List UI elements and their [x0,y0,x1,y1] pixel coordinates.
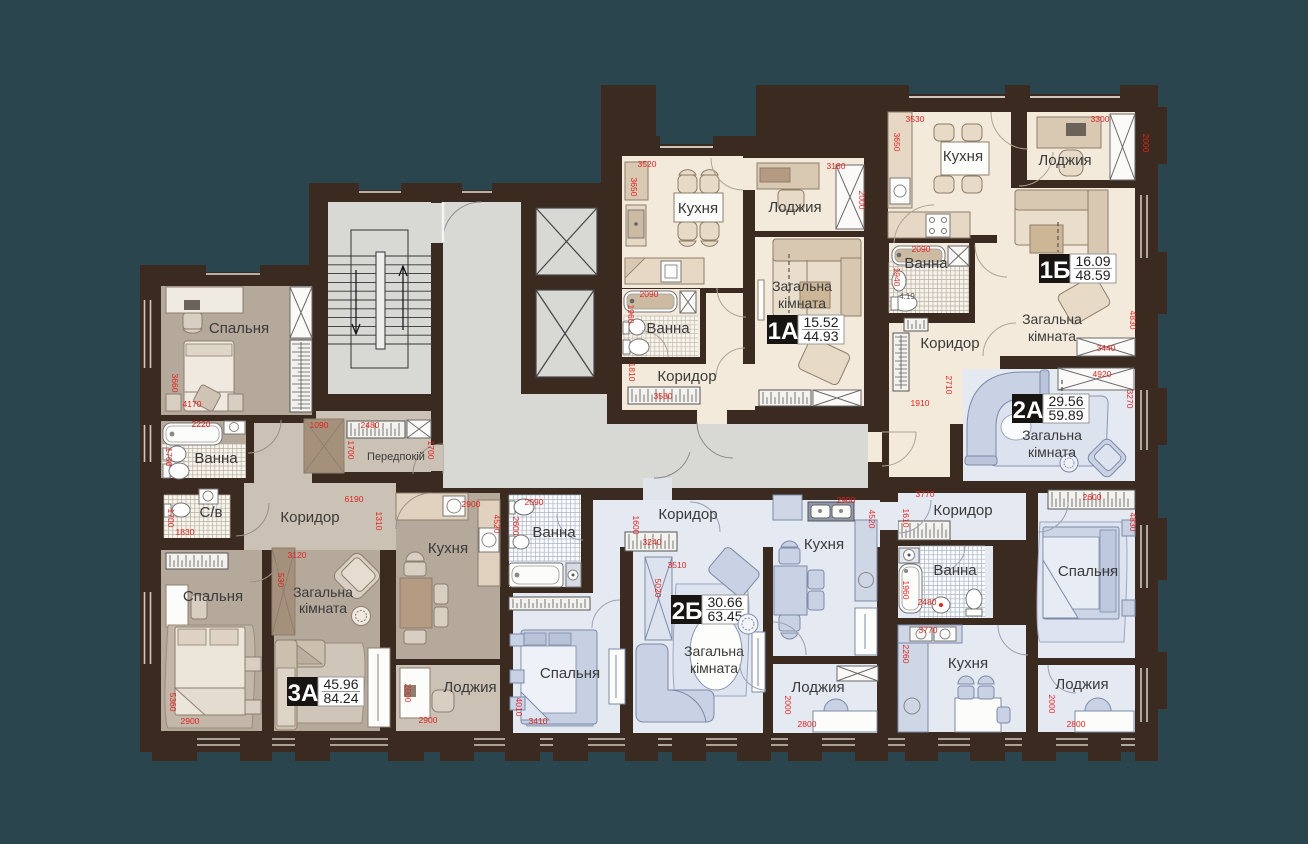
svg-text:1700: 1700 [166,509,176,528]
svg-text:4830: 4830 [1128,311,1138,330]
svg-text:1610: 1610 [901,509,911,528]
svg-text:С/в: С/в [200,504,223,521]
svg-text:2900: 2900 [837,495,856,505]
svg-text:3520: 3520 [638,159,657,169]
svg-text:3270: 3270 [1125,390,1135,409]
svg-text:5020: 5020 [653,579,663,598]
svg-text:2600: 2600 [511,517,521,536]
svg-text:2090: 2090 [640,289,659,299]
svg-text:3410: 3410 [529,716,548,726]
svg-text:Лоджия: Лоджия [1055,676,1108,693]
svg-text:2000: 2000 [857,191,867,210]
svg-text:3530: 3530 [906,114,925,124]
svg-text:1Б: 1Б [1040,257,1071,284]
svg-text:Кухня: Кухня [943,148,983,165]
svg-text:2480: 2480 [918,597,937,607]
svg-text:Спальня: Спальня [183,588,243,605]
svg-text:5360: 5360 [168,693,178,712]
svg-text:2090: 2090 [912,244,931,254]
svg-text:2800: 2800 [1067,719,1086,729]
svg-text:2А: 2А [1013,397,1044,424]
svg-text:4830: 4830 [1128,513,1138,532]
svg-text:3А: 3А [288,680,319,707]
svg-text:2710: 2710 [944,376,954,395]
svg-text:3650: 3650 [892,133,902,152]
svg-text:3180: 3180 [827,161,846,171]
svg-text:2480: 2480 [361,420,380,430]
svg-text:Кухня: Кухня [428,540,468,557]
svg-text:1910: 1910 [911,398,930,408]
svg-text:4520: 4520 [492,515,502,534]
svg-text:Коридор: Коридор [657,368,716,385]
svg-text:2000: 2000 [1047,695,1057,714]
svg-text:Коридор: Коридор [920,335,979,352]
svg-text:Лоджия: Лоджия [443,679,496,696]
svg-text:Загальна: Загальна [1022,311,1082,327]
svg-text:кімната: кімната [778,295,826,311]
svg-text:4.19: 4.19 [899,292,915,301]
svg-text:2260: 2260 [901,645,911,664]
svg-text:3770: 3770 [916,489,935,499]
svg-text:1700: 1700 [426,441,436,460]
svg-text:1А: 1А [768,318,799,345]
svg-text:2800: 2800 [798,719,817,729]
svg-text:63.45: 63.45 [707,608,742,624]
svg-text:6190: 6190 [345,494,364,504]
svg-text:Ванна: Ванна [532,524,576,541]
svg-text:Спальня: Спальня [540,665,600,682]
svg-text:1830: 1830 [176,527,195,537]
svg-text:кімната: кімната [1028,444,1076,460]
svg-text:кімната: кімната [1028,328,1076,344]
svg-text:4170: 4170 [183,399,202,409]
svg-text:кімната: кімната [299,600,347,616]
svg-text:1810: 1810 [627,363,637,382]
svg-text:3440: 3440 [1097,343,1116,353]
svg-text:84.24: 84.24 [323,690,358,706]
svg-text:Спальня: Спальня [209,320,269,337]
svg-text:2000: 2000 [403,684,413,703]
svg-text:4520: 4520 [867,510,877,529]
svg-text:Загальна: Загальна [293,584,353,600]
svg-text:530: 530 [276,573,286,587]
svg-text:Лоджия: Лоджия [791,679,844,696]
svg-text:1600: 1600 [631,516,641,535]
svg-text:Ванна: Ванна [933,562,977,579]
svg-text:Лоджия: Лоджия [768,199,821,216]
svg-text:2220: 2220 [192,419,211,429]
svg-text:1090: 1090 [310,420,329,430]
svg-text:Загальна: Загальна [772,278,832,294]
svg-text:3770: 3770 [919,625,938,635]
svg-text:3580: 3580 [654,391,673,401]
svg-text:кімната: кімната [690,660,738,676]
svg-text:1700: 1700 [346,441,356,460]
svg-text:Кухня: Кухня [678,200,718,217]
svg-text:48.59: 48.59 [1075,267,1110,283]
svg-text:2000: 2000 [1141,134,1151,153]
svg-text:1940: 1940 [892,268,902,287]
svg-text:1960: 1960 [626,305,636,324]
svg-text:Ванна: Ванна [904,255,948,272]
svg-text:1960: 1960 [901,581,911,600]
svg-text:Передпокій: Передпокій [367,451,425,463]
svg-text:2090: 2090 [525,497,544,507]
svg-text:Загальна: Загальна [684,643,744,659]
svg-text:3300: 3300 [1091,114,1110,124]
svg-text:Коридор: Коридор [933,502,992,519]
svg-text:2900: 2900 [419,715,438,725]
svg-text:Кухня: Кухня [948,655,988,672]
svg-text:3510: 3510 [668,560,687,570]
svg-text:Ванна: Ванна [646,320,690,337]
svg-text:Спальня: Спальня [1058,563,1118,580]
svg-text:Ванна: Ванна [194,450,238,467]
svg-text:4920: 4920 [1093,369,1112,379]
svg-text:Коридор: Коридор [280,509,339,526]
svg-text:1310: 1310 [374,512,384,531]
svg-text:3240: 3240 [643,537,662,547]
svg-text:3120: 3120 [288,550,307,560]
svg-text:Кухня: Кухня [804,536,844,553]
svg-text:59.89: 59.89 [1048,407,1083,423]
svg-text:Коридор: Коридор [658,506,717,523]
svg-text:4010: 4010 [514,698,524,717]
svg-text:2Б: 2Б [672,598,703,625]
svg-text:2000: 2000 [783,696,793,715]
svg-text:1700: 1700 [164,448,174,467]
svg-text:Лоджия: Лоджия [1038,152,1091,169]
svg-text:3650: 3650 [629,178,639,197]
svg-text:Загальна: Загальна [1022,427,1082,443]
svg-text:3660: 3660 [170,374,180,393]
svg-text:44.93: 44.93 [803,328,838,344]
svg-text:2600: 2600 [1083,492,1102,502]
svg-text:2900: 2900 [181,716,200,726]
svg-text:2900: 2900 [462,499,481,509]
